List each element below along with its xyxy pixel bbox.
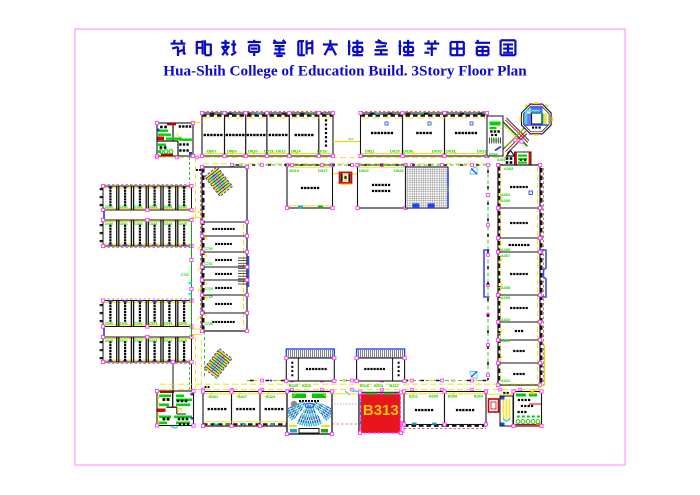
svg-text:A309: A309 (501, 296, 510, 300)
svg-text:B304: B304 (474, 395, 484, 399)
svg-text:Hua-Shih College of Education: Hua-Shih College of Education Build. 3St… (163, 63, 527, 80)
svg-text:C722: C722 (181, 273, 189, 277)
svg-text:D011: D011 (264, 149, 274, 154)
svg-text:A306: A306 (501, 248, 510, 252)
svg-text:C720: C720 (205, 247, 213, 251)
svg-text:A308: A308 (501, 286, 510, 290)
svg-text:D013: D013 (290, 168, 300, 173)
svg-text:C724: C724 (205, 287, 213, 291)
svg-text:C041: C041 (120, 322, 128, 326)
svg-text:A307: A307 (501, 254, 510, 258)
svg-text:D031: D031 (446, 149, 456, 154)
svg-text:D030: D030 (432, 149, 442, 154)
svg-text:A303: A303 (504, 167, 513, 171)
svg-text:C040: C040 (105, 205, 113, 209)
svg-text:B327: B327 (238, 395, 247, 399)
svg-text:B309: B309 (429, 395, 438, 399)
svg-text:C044: C044 (164, 222, 172, 226)
svg-text:C045: C045 (179, 205, 187, 209)
svg-text:C043: C043 (149, 322, 157, 326)
svg-text:C043: C043 (149, 205, 157, 209)
svg-text:D025: D025 (390, 149, 400, 154)
svg-text:C044: C044 (164, 322, 172, 326)
svg-text:C041: C041 (120, 222, 128, 226)
svg-text:D034: D034 (489, 153, 498, 157)
svg-text:B308: B308 (448, 395, 457, 399)
svg-text:D007: D007 (207, 149, 217, 154)
svg-text:D018: D018 (317, 149, 327, 154)
svg-text:C043: C043 (149, 222, 157, 226)
svg-text:D021: D021 (365, 149, 375, 154)
svg-text:D013: D013 (276, 149, 286, 154)
svg-text:C045: C045 (179, 222, 187, 226)
svg-text:D010: D010 (248, 149, 258, 154)
svg-text:A315: A315 (492, 139, 500, 143)
svg-text:D009: D009 (227, 149, 237, 154)
svg-text:D026: D026 (403, 149, 413, 154)
svg-text:C040: C040 (105, 322, 113, 326)
svg-text:D020: D020 (359, 168, 369, 173)
svg-text:C042: C042 (134, 339, 142, 343)
svg-text:B313: B313 (363, 402, 399, 419)
svg-text:A310: A310 (501, 318, 510, 322)
svg-text:C045: C045 (179, 339, 187, 343)
svg-text:A311: A311 (501, 339, 510, 343)
svg-text:D017: D017 (318, 168, 328, 173)
svg-text:A302: A302 (497, 158, 506, 162)
svg-text:C040: C040 (105, 339, 113, 343)
svg-text:C041: C041 (120, 205, 128, 209)
svg-text:C042: C042 (134, 222, 142, 226)
svg-text:C728: C728 (205, 322, 213, 326)
svg-text:C044: C044 (164, 339, 172, 343)
svg-text:C040: C040 (105, 222, 113, 226)
svg-text:A312: A312 (501, 379, 510, 383)
svg-text:D024: D024 (394, 168, 404, 173)
svg-text:C045: C045 (179, 322, 187, 326)
svg-text:D033: D033 (477, 149, 487, 154)
svg-text:A304: A304 (501, 193, 511, 197)
svg-text:D014: D014 (291, 149, 301, 154)
svg-text:C721: C721 (205, 262, 213, 266)
svg-text:C042: C042 (134, 322, 142, 326)
svg-text:36A: 36A (348, 137, 354, 141)
svg-text:C042: C042 (134, 205, 142, 209)
svg-text:C044: C044 (164, 205, 172, 209)
svg-text:C041: C041 (120, 339, 128, 343)
svg-text:A305: A305 (501, 199, 510, 203)
svg-text:C043: C043 (149, 339, 157, 343)
